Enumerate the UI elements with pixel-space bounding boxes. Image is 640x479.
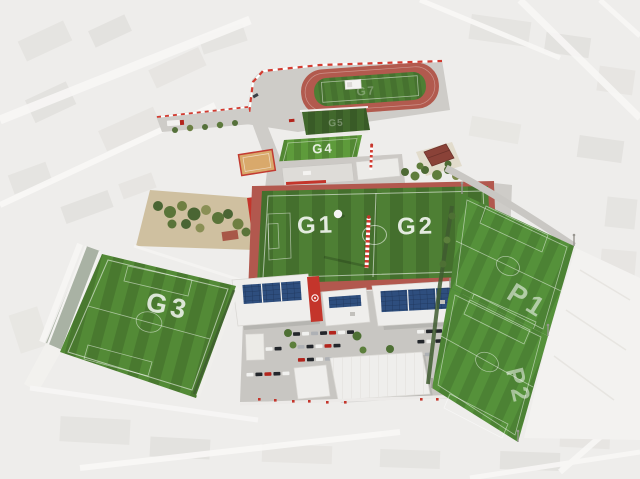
aerial-screenshot: G7 G5 G4	[0, 0, 640, 479]
small-tent	[294, 365, 330, 399]
pitch-label-g1: G1	[297, 212, 336, 240]
pitch-label-g4: G4	[312, 140, 334, 156]
mid-building	[322, 288, 370, 326]
pitch-g5: G5	[300, 107, 370, 135]
pitch-label-g2: G2	[397, 213, 436, 241]
event-canopy	[330, 352, 433, 403]
service-building	[246, 334, 265, 361]
sand-court	[238, 149, 275, 175]
aerial-photo: G7 G5 G4	[0, 0, 640, 479]
main-building-west	[232, 274, 320, 330]
pitch-label-g5: G5	[328, 118, 344, 130]
van	[303, 171, 311, 175]
track-clubhouse	[345, 79, 362, 89]
car	[289, 119, 295, 122]
